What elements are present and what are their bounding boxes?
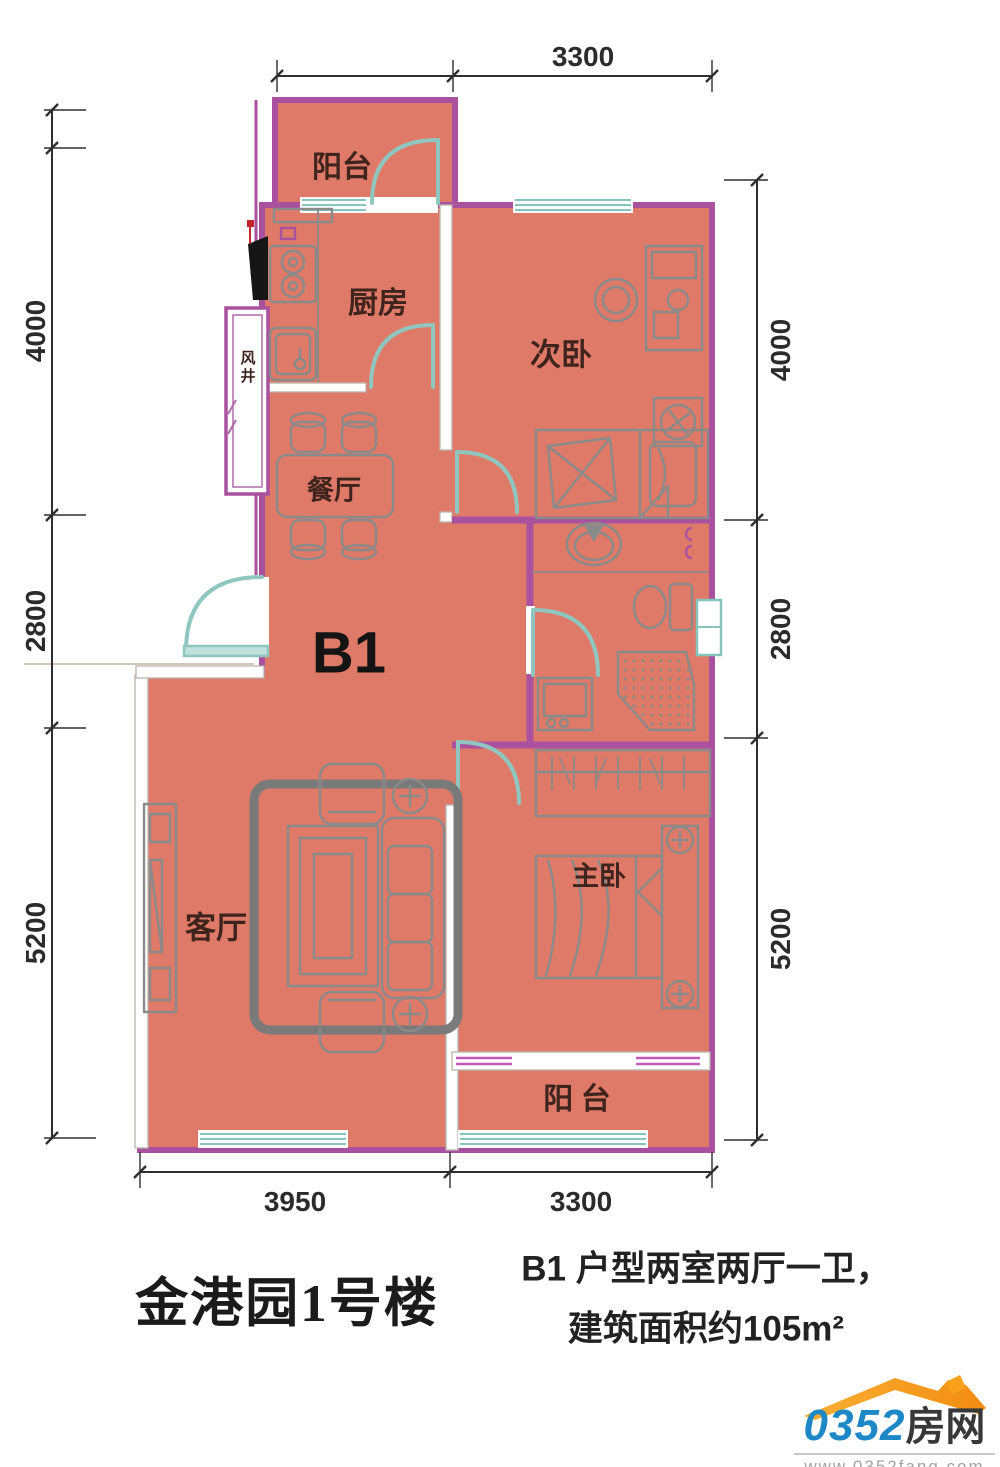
- logo-url: www.0352fang.com: [792, 1457, 997, 1467]
- site-logo: 0352房网 www.0352fang.com: [792, 1366, 997, 1467]
- room-label-dining: 餐厅: [307, 469, 361, 508]
- unit-description-line2: 建筑面积约105m²: [568, 1301, 844, 1352]
- floorplan-page: 3300 4000 2800 5200 4000 2800 5200 3950 …: [0, 0, 1000, 1467]
- dim-right-2800: 2800: [765, 598, 797, 660]
- dim-left-2800: 2800: [20, 590, 52, 652]
- logo-number: 0352: [804, 1401, 906, 1451]
- logo-suffix: 房网: [905, 1394, 985, 1452]
- dim-bottom-3300: 3300: [550, 1186, 612, 1218]
- dim-left-4000: 4000: [20, 300, 52, 362]
- dim-right-4000: 4000: [765, 319, 797, 381]
- dim-top: 3300: [552, 41, 614, 73]
- dim-left-5200: 5200: [20, 902, 52, 964]
- room-label-balcony-bottom: 阳 台: [543, 1074, 611, 1118]
- room-label-bedroom2: 次卧: [530, 330, 592, 375]
- room-label-kitchen: 厨房: [348, 278, 408, 322]
- dim-bottom-3950: 3950: [264, 1186, 326, 1218]
- dim-right-5200: 5200: [765, 908, 797, 970]
- logo-divider: [794, 1453, 995, 1455]
- room-label-living: 客厅: [185, 903, 247, 948]
- room-label-master: 主卧: [572, 855, 626, 894]
- riser-wedge: [248, 236, 268, 300]
- building-title: 金港园1号楼: [135, 1261, 439, 1337]
- unit-label: B1: [312, 620, 386, 687]
- unit-description-line1: B1 户型两室两厅一卫，: [521, 1241, 890, 1292]
- room-label-balcony-top: 阳台: [312, 142, 372, 186]
- room-label-air-shaft: 风井: [237, 350, 258, 386]
- apartment-outline: [140, 100, 712, 1150]
